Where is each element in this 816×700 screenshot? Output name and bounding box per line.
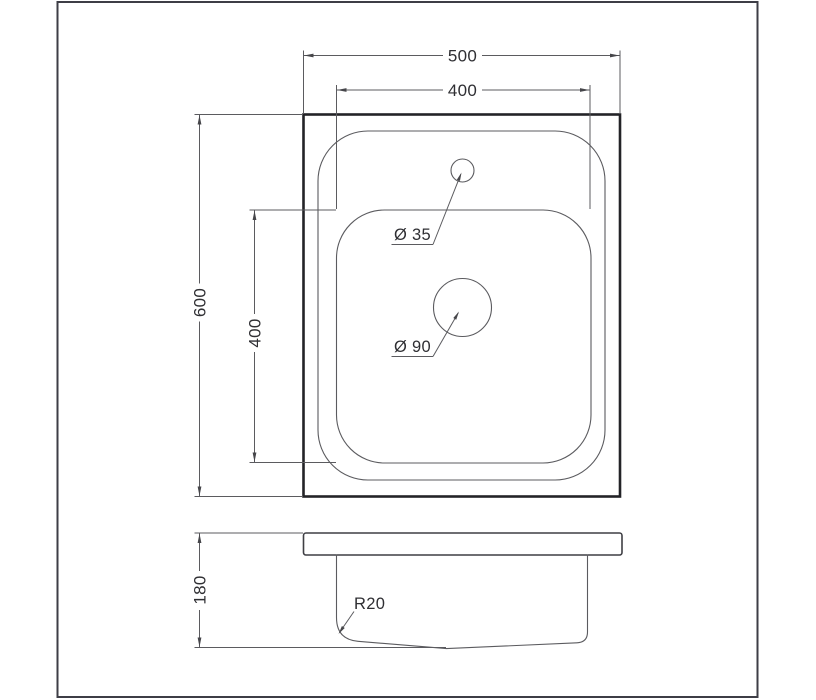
dim-overall-height: 600	[191, 115, 304, 497]
corner-radius-label: R20	[354, 595, 385, 613]
dim-arrow	[198, 487, 202, 497]
drain-hole-label: Ø 90	[394, 338, 431, 356]
dim-overall-height-label: 600	[191, 288, 210, 317]
side-view	[304, 533, 623, 649]
dim-arrow	[610, 54, 620, 58]
dim-arrow	[198, 115, 202, 125]
dim-arrow	[198, 638, 202, 648]
side-view-flange	[304, 533, 623, 555]
dim-bowl-width-label: 400	[448, 81, 477, 100]
top-view	[304, 115, 621, 497]
dim-overall-width-label: 500	[448, 47, 477, 66]
sink-outer-outline	[304, 115, 621, 497]
dim-arrow	[304, 54, 314, 58]
drawing-page: 500 400 600 400 Ø 35	[0, 0, 816, 700]
dim-depth-label: 180	[191, 575, 210, 604]
callout-corner-radius: R20	[339, 595, 386, 634]
dim-arrow	[580, 88, 590, 92]
technical-drawing-canvas: 500 400 600 400 Ø 35	[0, 0, 816, 700]
dim-arrow	[253, 211, 257, 221]
dim-arrow	[253, 453, 257, 463]
dim-arrow	[198, 534, 202, 544]
dim-arrow	[337, 88, 347, 92]
dim-bowl-height-label: 400	[246, 318, 265, 347]
faucet-hole-label: Ø 35	[394, 226, 431, 244]
